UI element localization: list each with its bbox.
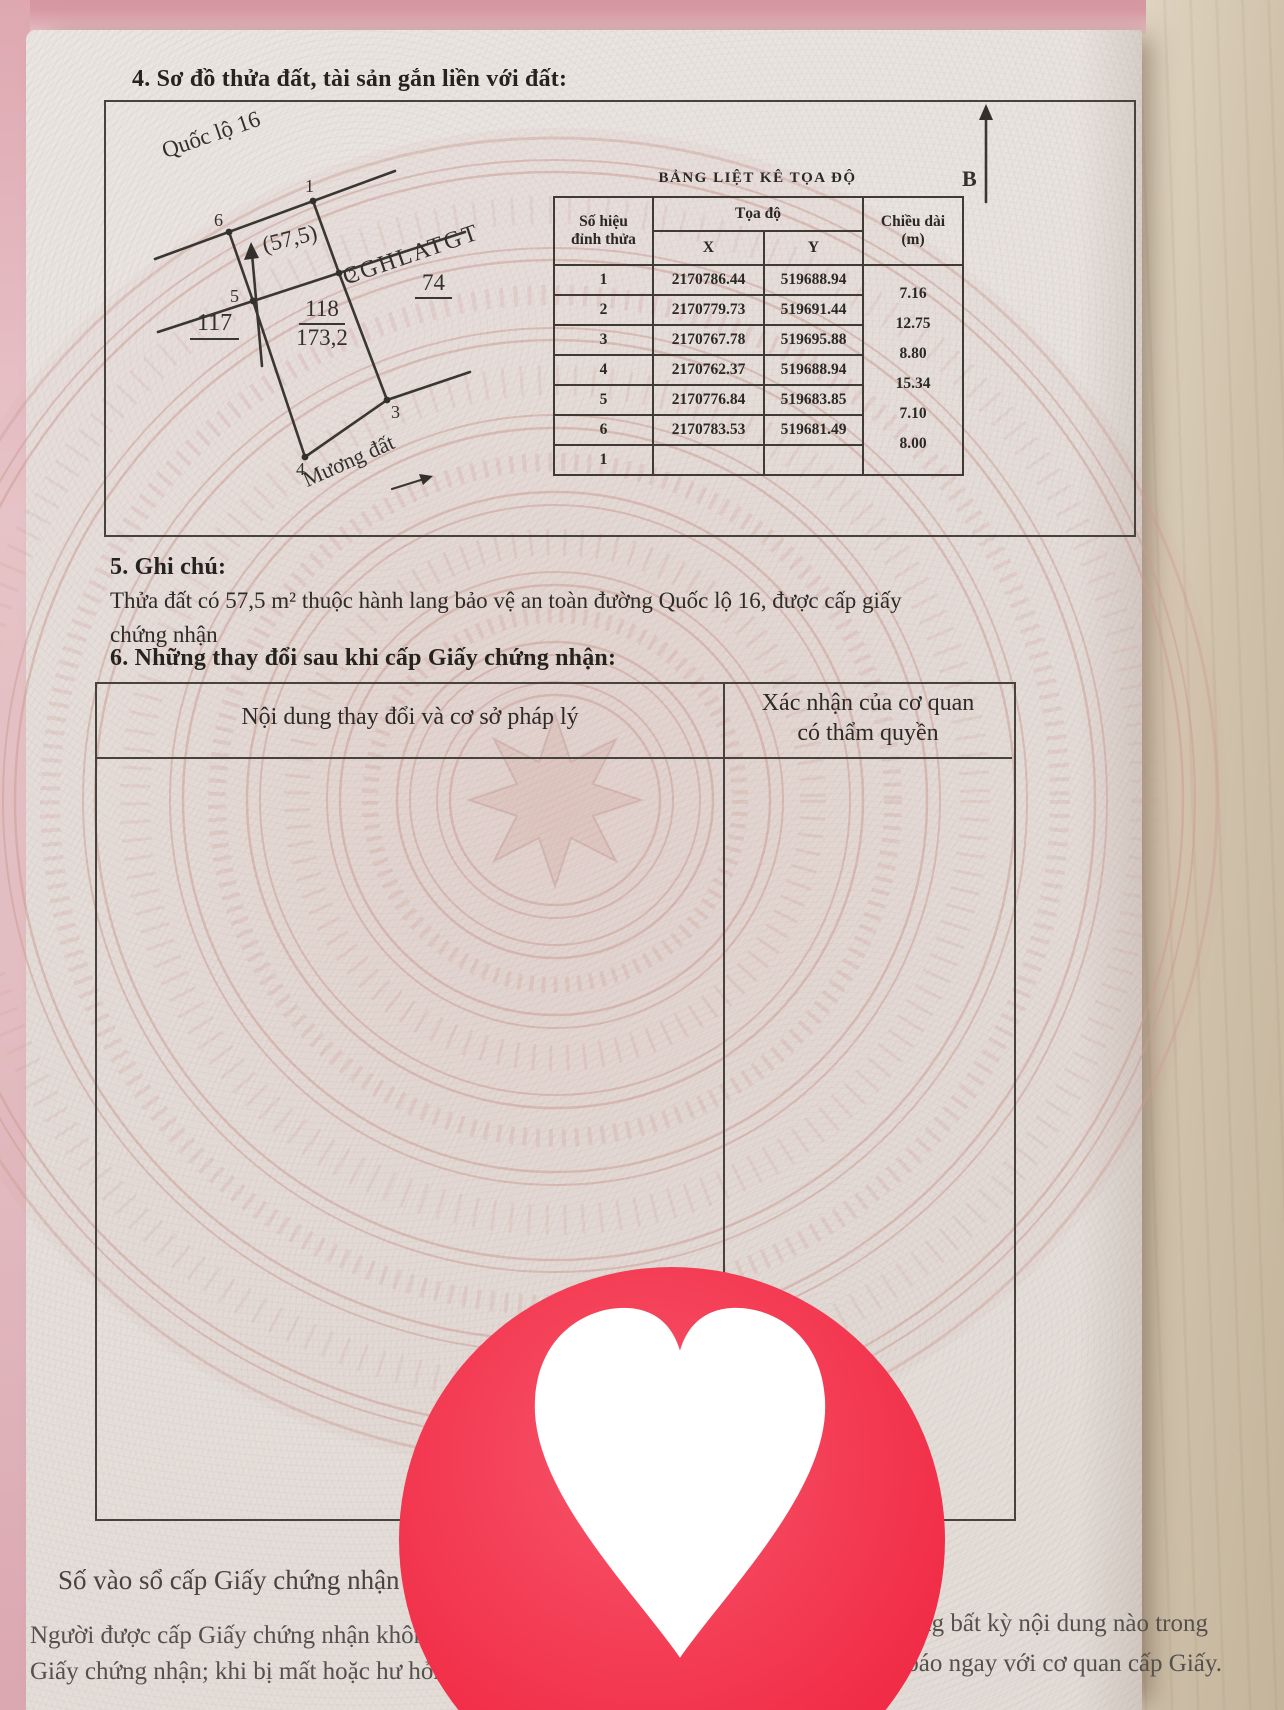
x-cell: 2170767.78 — [653, 325, 764, 355]
vertex-label-1: 1 — [305, 176, 314, 197]
col-length-header: Chiều dài (m) — [863, 197, 963, 265]
y-cell: 519681.49 — [764, 415, 863, 445]
x-cell — [653, 445, 764, 475]
heart-icon — [515, 1292, 845, 1667]
coordinate-table-title: BẢNG LIỆT KÊ TỌA ĐỘ — [553, 170, 962, 187]
y-cell: 519683.85 — [764, 385, 863, 415]
x-cell: 2170783.53 — [653, 415, 764, 445]
vertex-cell: 5 — [554, 385, 653, 415]
vertex-cell: 1 — [554, 265, 653, 295]
background-fabric-top — [0, 0, 1146, 34]
parcel-area: 173,2 — [296, 325, 348, 350]
section5-note-line1: Thửa đất có 57,5 m² thuộc hành lang bảo … — [110, 588, 902, 614]
changes-col-left-header: Nội dung thay đổi và cơ sở pháp lý — [100, 704, 720, 731]
x-cell: 2170786.44 — [653, 265, 764, 295]
y-cell: 519688.94 — [764, 265, 863, 295]
changes-col-right-header-line2: có thẩm quyền — [728, 720, 1008, 747]
vertex-label-5: 5 — [230, 286, 239, 307]
edge-length: 7.16 — [864, 285, 962, 303]
section6-heading: 6. Những thay đổi sau khi cấp Giấy chứng… — [110, 645, 616, 672]
col-y-header: Y — [764, 231, 863, 265]
edge-length: 12.75 — [864, 315, 962, 333]
north-label: B — [962, 166, 977, 192]
changes-table-header-line — [95, 757, 1012, 759]
y-cell: 519688.94 — [764, 355, 863, 385]
col-vertex-header: Số hiệu đỉnh thửa — [554, 197, 653, 265]
vertex-cell: 6 — [554, 415, 653, 445]
col-coords-header: Tọa độ — [653, 197, 863, 231]
vertex-header-line2: đỉnh thửa — [555, 231, 652, 249]
vertex-cell: 3 — [554, 325, 653, 355]
x-cell: 2170776.84 — [653, 385, 764, 415]
footer-note-line1-left: Người được cấp Giấy chứng nhận khôn — [30, 1622, 426, 1650]
coordinate-table: Số hiệu đỉnh thửa Tọa độ Chiều dài (m) X… — [553, 196, 964, 476]
section4-heading: 4. Sơ đồ thửa đất, tài sản gắn liền với … — [132, 66, 567, 93]
vertex-cell: 2 — [554, 295, 653, 325]
vertex-header-line1: Số hiệu — [555, 213, 652, 231]
y-cell: 519695.88 — [764, 325, 863, 355]
vertex-cell: 1 — [554, 445, 653, 475]
coord-header-row: Số hiệu đỉnh thửa Tọa độ Chiều dài (m) — [554, 197, 963, 231]
changes-col-right-header-line1: Xác nhận của cơ quan — [728, 690, 1008, 717]
edge-length: 15.34 — [864, 375, 962, 393]
table-row: 1 2170786.44 519688.94 7.16 12.75 8.80 1… — [554, 265, 963, 295]
register-number-line: Số vào sổ cấp Giấy chứng nhận — [58, 1565, 400, 1596]
y-cell: 519691.44 — [764, 295, 863, 325]
edge-length: 8.00 — [864, 435, 962, 453]
section5-heading: 5. Ghi chú: — [110, 554, 226, 581]
col-x-header: X — [653, 231, 764, 265]
length-header-line1: Chiều dài — [864, 213, 962, 231]
footer-note-line2-left: Giấy chứng nhận; khi bị mất hoặc hư hỏng — [30, 1658, 458, 1686]
parcel-number-area-label: 118 173,2 — [284, 296, 360, 351]
edge-length: 8.80 — [864, 345, 962, 363]
neighbor-parcel-right-label: 74 — [415, 270, 452, 299]
edge-length: 7.10 — [864, 405, 962, 423]
length-header-line2: (m) — [864, 231, 962, 249]
length-column-cell: 7.16 12.75 8.80 15.34 7.10 8.00 — [863, 265, 963, 475]
photographed-land-certificate-page: 4. Sơ đồ thửa đất, tài sản gắn liền với … — [0, 0, 1284, 1710]
y-cell — [764, 445, 863, 475]
parcel-number: 118 — [299, 296, 345, 325]
vertex-cell: 4 — [554, 355, 653, 385]
vertex-label-6: 6 — [214, 210, 223, 231]
x-cell: 2170779.73 — [653, 295, 764, 325]
vertex-label-3: 3 — [391, 402, 400, 423]
x-cell: 2170762.37 — [653, 355, 764, 385]
neighbor-parcel-left-label: 117 — [190, 310, 239, 340]
